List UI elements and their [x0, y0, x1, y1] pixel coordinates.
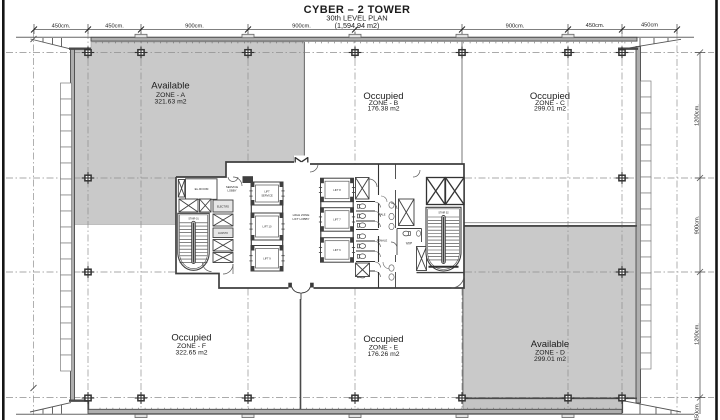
svg-text:299.01 m2: 299.01 m2	[534, 356, 566, 363]
svg-text:450cm.: 450cm.	[695, 402, 701, 420]
svg-text:LIFT 10: LIFT 10	[263, 225, 272, 229]
svg-text:321.63 m2: 321.63 m2	[154, 98, 186, 105]
svg-text:299.01 m2: 299.01 m2	[534, 106, 566, 113]
svg-text:322.65 m2: 322.65 m2	[175, 350, 207, 357]
svg-text:SERVICE: SERVICE	[261, 194, 273, 198]
svg-text:(1,594,94 m2): (1,594,94 m2)	[335, 21, 380, 30]
svg-text:1200cm.: 1200cm.	[695, 323, 701, 345]
svg-text:LIFT 7: LIFT 7	[333, 218, 341, 222]
svg-text:STAIR-01: STAIR-01	[188, 218, 199, 221]
svg-text:EL.ROOM: EL.ROOM	[195, 187, 209, 191]
svg-text:ELECT.RD: ELECT.RD	[217, 206, 229, 209]
svg-text:900cm.: 900cm.	[506, 24, 525, 30]
svg-text:450cm.: 450cm.	[52, 24, 71, 30]
svg-text:176.26 m2: 176.26 m2	[367, 351, 399, 358]
svg-text:LIFT 9: LIFT 9	[263, 256, 271, 260]
svg-text:450cm: 450cm	[641, 23, 658, 29]
svg-text:900cm.: 900cm.	[695, 215, 701, 234]
svg-text:Available: Available	[531, 339, 569, 350]
svg-text:900cm.: 900cm.	[292, 24, 311, 30]
svg-text:900cm.: 900cm.	[185, 24, 204, 30]
svg-text:FEMALE: FEMALE	[377, 239, 388, 243]
svg-text:1200cm.: 1200cm.	[695, 104, 701, 126]
svg-text:LIFT 6: LIFT 6	[333, 248, 341, 252]
svg-text:LIFT 8: LIFT 8	[333, 188, 341, 192]
svg-text:STAIR 02: STAIR 02	[438, 212, 449, 215]
svg-text:Occupied: Occupied	[363, 334, 403, 345]
svg-text:450cm.: 450cm.	[586, 23, 605, 29]
svg-text:LIFT LOBBY: LIFT LOBBY	[293, 217, 310, 221]
svg-text:LIFT: LIFT	[264, 190, 270, 194]
svg-text:LOBBY: LOBBY	[227, 188, 236, 192]
svg-text:176.38 m2: 176.38 m2	[367, 106, 399, 113]
svg-text:Occupied: Occupied	[171, 333, 211, 344]
svg-text:VIP: VIP	[406, 241, 413, 246]
svg-text:JAN/STO: JAN/STO	[218, 232, 228, 235]
svg-text:Available: Available	[151, 81, 189, 92]
svg-text:450cm.: 450cm.	[105, 24, 124, 30]
